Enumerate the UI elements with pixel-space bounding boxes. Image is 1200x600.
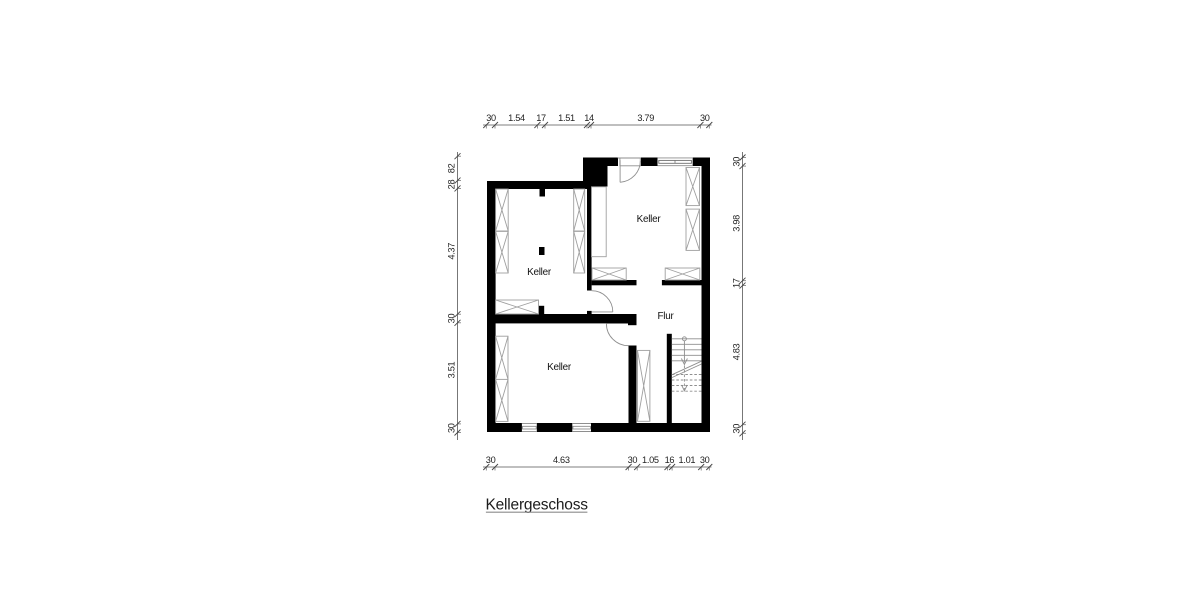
svg-text:Keller: Keller [547,362,572,373]
svg-text:30: 30 [447,314,457,324]
svg-text:30: 30 [486,113,496,123]
svg-text:Keller: Keller [527,267,552,278]
svg-text:Kellergeschoss: Kellergeschoss [486,496,589,513]
svg-text:4.83: 4.83 [732,343,742,360]
svg-text:30: 30 [628,455,638,465]
svg-text:3.79: 3.79 [637,113,654,123]
svg-text:4.63: 4.63 [553,455,570,465]
svg-text:17: 17 [536,113,546,123]
svg-text:1.05: 1.05 [642,455,659,465]
svg-text:30: 30 [700,113,710,123]
svg-text:30: 30 [732,157,742,167]
svg-text:28: 28 [447,180,457,190]
svg-text:82: 82 [447,163,457,173]
svg-text:1.01: 1.01 [679,455,696,465]
svg-text:30: 30 [447,423,457,433]
svg-text:Keller: Keller [637,214,662,225]
svg-text:30: 30 [486,455,496,465]
svg-text:16: 16 [665,455,675,465]
svg-text:1.51: 1.51 [558,113,575,123]
svg-text:17: 17 [732,278,742,288]
svg-text:30: 30 [732,424,742,434]
svg-text:4.37: 4.37 [447,243,457,260]
svg-text:14: 14 [584,113,594,123]
svg-text:1.54: 1.54 [508,113,525,123]
svg-text:30: 30 [700,455,710,465]
svg-text:3.98: 3.98 [732,215,742,232]
svg-text:Flur: Flur [657,311,674,322]
svg-text:3.51: 3.51 [447,361,457,378]
